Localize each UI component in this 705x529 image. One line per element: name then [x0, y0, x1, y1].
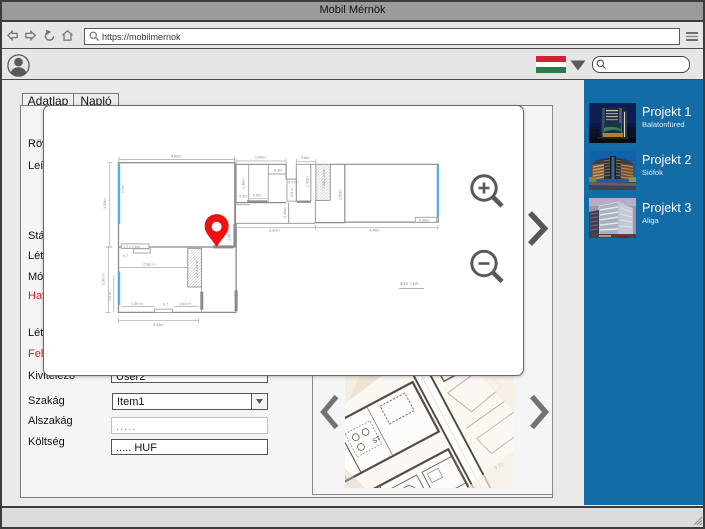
svg-text:0.5m: 0.5m	[239, 195, 247, 199]
svg-text:1.30m: 1.30m	[242, 178, 246, 189]
svg-text:3.55m: 3.55m	[103, 198, 107, 209]
svg-text:3.30m: 3.30m	[269, 229, 280, 233]
svg-text:1.66 m: 1.66 m	[228, 229, 232, 241]
svg-text:0.5m: 0.5m	[253, 194, 261, 198]
svg-text:4.40m: 4.40m	[369, 229, 380, 233]
svg-text:1.2 x 0.6m: 1.2 x 0.6m	[123, 245, 140, 249]
svg-text:0.95m: 0.95m	[419, 219, 429, 223]
svg-text:1.55 m: 1.55 m	[131, 302, 143, 306]
svg-text:2.50m: 2.50m	[339, 189, 343, 200]
svg-text:2.00m: 2.00m	[255, 156, 266, 160]
svg-text:2.60 m: 2.60 m	[102, 273, 106, 285]
svg-text:0.35m: 0.35m	[283, 207, 287, 218]
svg-text:1.40m: 1.40m	[306, 176, 310, 187]
svg-text:0.7: 0.7	[123, 254, 128, 258]
svg-text:3.45m: 3.45m	[153, 323, 164, 327]
svg-text:0.7: 0.7	[163, 302, 168, 306]
svg-text:0.47m: 0.47m	[288, 181, 299, 185]
svg-text:1.98(2.04)m: 1.98(2.04)m	[322, 169, 326, 189]
svg-text:4.80m: 4.80m	[171, 155, 182, 159]
svg-text:1.5 m: 1.5 m	[108, 292, 112, 302]
svg-text:1.64 m: 1.64 m	[179, 302, 191, 306]
svg-text:0.6 m: 0.6 m	[290, 188, 294, 198]
svg-text:2.98 m: 2.98 m	[143, 263, 155, 267]
svg-text:0.8m: 0.8m	[301, 156, 309, 160]
svg-text:2cm = 1m: 2cm = 1m	[400, 281, 419, 286]
svg-text:0.3m: 0.3m	[274, 169, 282, 173]
svg-text:1.1 x 0.8 m: 1.1 x 0.8 m	[195, 261, 199, 277]
svg-text:0.5m: 0.5m	[121, 185, 125, 193]
